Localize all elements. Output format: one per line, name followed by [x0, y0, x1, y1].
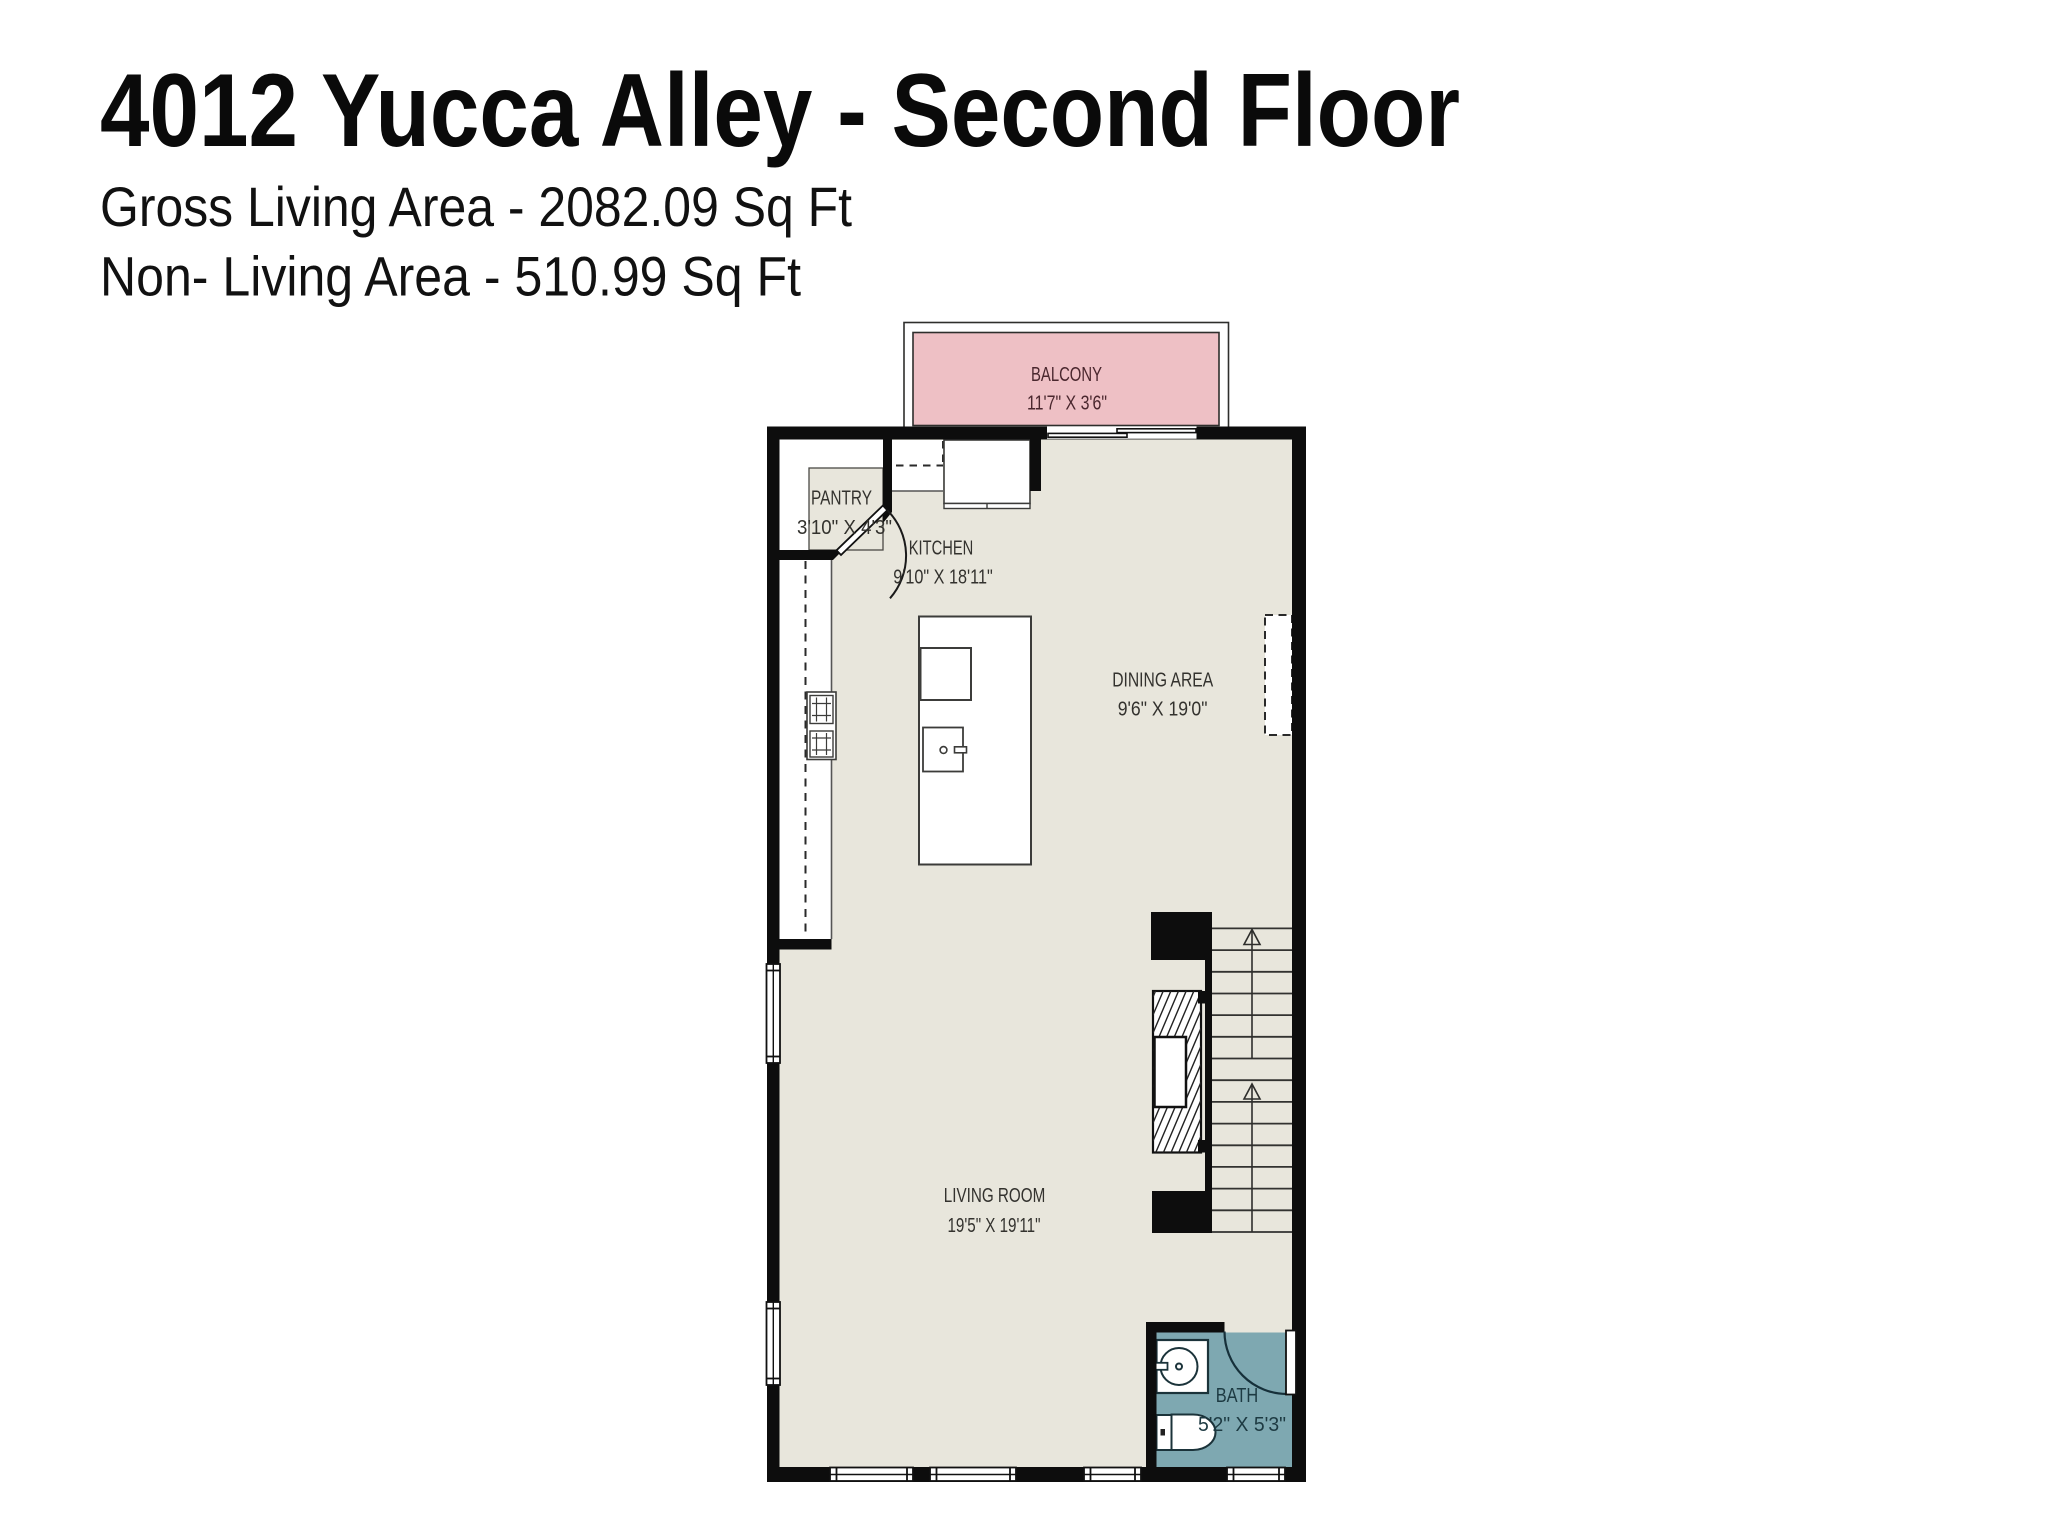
svg-text:KITCHEN: KITCHEN: [909, 536, 974, 559]
svg-text:BALCONY: BALCONY: [1031, 363, 1102, 386]
svg-text:LIVING ROOM: LIVING ROOM: [944, 1184, 1046, 1207]
svg-text:PANTRY: PANTRY: [811, 487, 872, 510]
svg-text:5'2" X 5'3": 5'2" X 5'3": [1198, 1413, 1286, 1436]
svg-text:4012 Yucca Alley - Second Floo: 4012 Yucca Alley - Second Floor: [100, 53, 1460, 169]
svg-text:BATH: BATH: [1216, 1384, 1259, 1407]
svg-text:Non- Living Area - 510.99 Sq F: Non- Living Area - 510.99 Sq Ft: [100, 245, 801, 308]
svg-text:9'6" X 19'0": 9'6" X 19'0": [1118, 698, 1208, 721]
svg-text:9'10" X 18'11": 9'10" X 18'11": [893, 566, 993, 589]
svg-text:DINING AREA: DINING AREA: [1112, 668, 1213, 691]
svg-text:11'7" X 3'6": 11'7" X 3'6": [1027, 392, 1107, 415]
svg-text:3'10" X 4'3": 3'10" X 4'3": [797, 516, 892, 539]
svg-text:Gross Living Area - 2082.09 Sq: Gross Living Area - 2082.09 Sq Ft: [100, 175, 852, 238]
svg-text:19'5" X 19'11": 19'5" X 19'11": [948, 1214, 1041, 1237]
